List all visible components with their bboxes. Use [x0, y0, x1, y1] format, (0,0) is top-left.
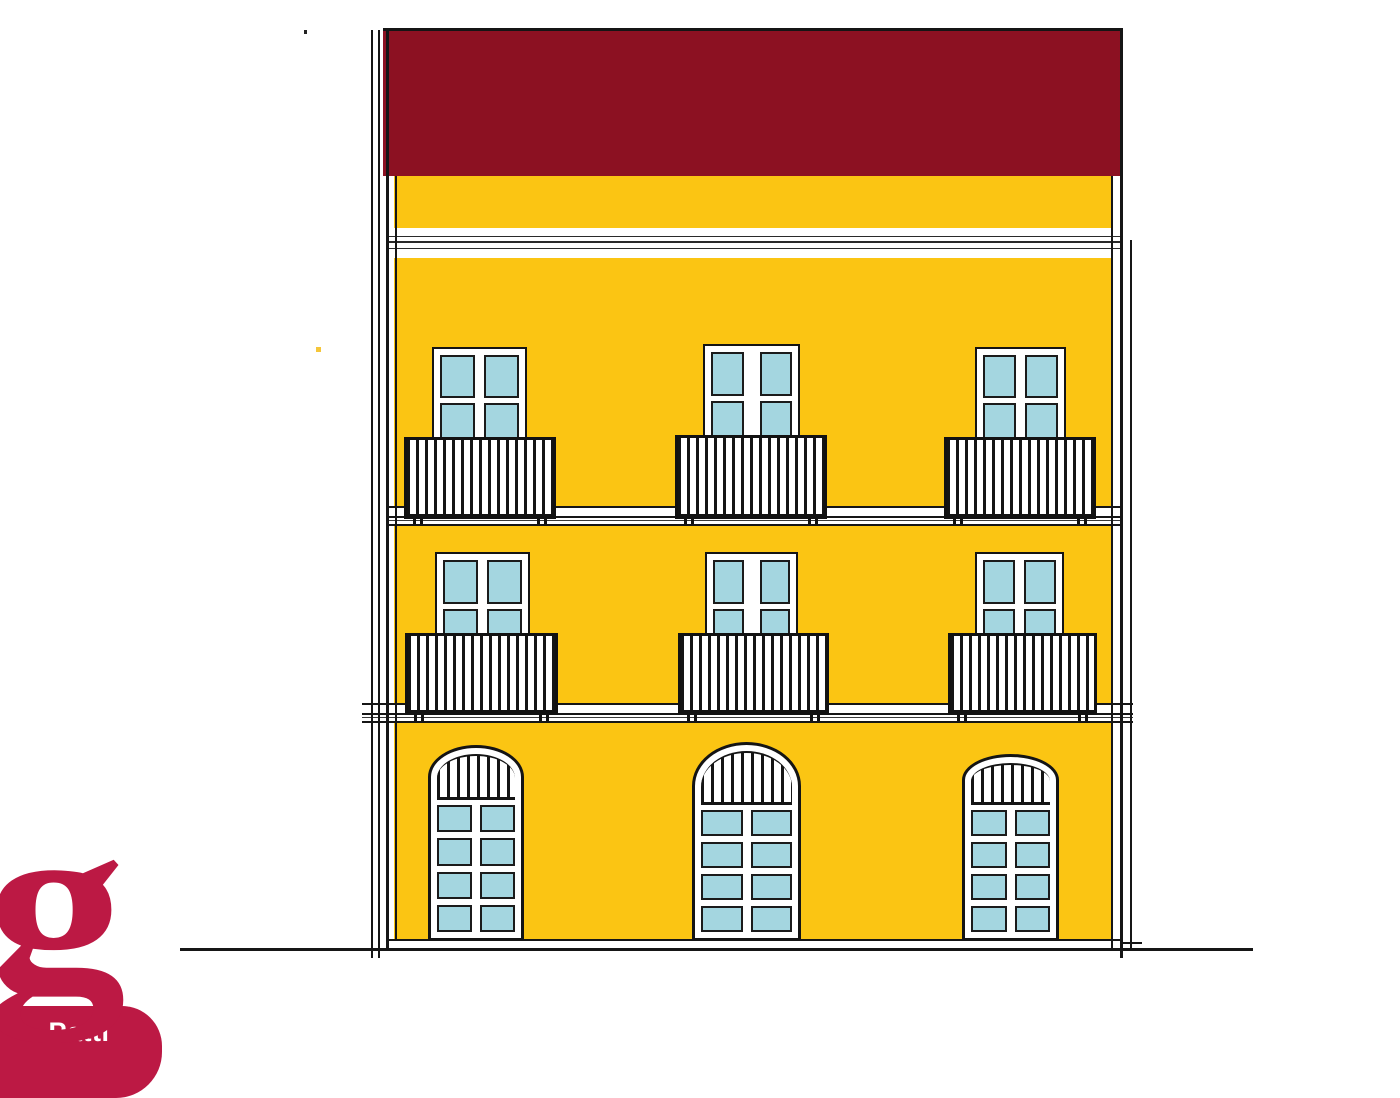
window-pane	[751, 810, 793, 836]
window-pane	[971, 906, 1007, 932]
door-fanlight	[701, 751, 792, 805]
window-pane	[971, 874, 1007, 900]
facade-edge-line	[378, 30, 380, 958]
window-pane	[480, 905, 515, 932]
window-pane	[983, 560, 1015, 604]
window-pane	[440, 355, 475, 398]
balcony-railing	[405, 633, 558, 715]
window-pane	[701, 874, 743, 900]
window-pane	[1025, 355, 1058, 398]
speck	[304, 30, 307, 34]
balcony-railing	[944, 437, 1096, 519]
door-casement	[971, 810, 1007, 932]
door-casement	[701, 810, 743, 932]
window-pane	[1015, 906, 1051, 932]
window-pane	[701, 810, 743, 836]
roof	[383, 28, 1122, 176]
door-fanlight	[971, 763, 1050, 805]
cornice-line	[386, 241, 1122, 243]
window-pane	[443, 560, 478, 604]
ground-line	[180, 948, 1253, 951]
door-glazing	[437, 805, 515, 932]
elevation-drawing	[0, 0, 1400, 1050]
facade-edge-line	[395, 176, 397, 941]
facade-edge-line	[371, 30, 373, 958]
window-pane	[487, 560, 522, 604]
window-pane	[701, 906, 743, 932]
building-base-line	[386, 939, 1122, 941]
cornice-line	[386, 236, 1122, 237]
window-pane	[701, 842, 743, 868]
door-casement	[480, 805, 515, 932]
door-mullion	[1007, 810, 1015, 932]
door-mullion	[743, 810, 751, 932]
cornice-band	[386, 228, 1122, 258]
facade-edge-line	[386, 28, 389, 950]
window-pane	[437, 838, 472, 865]
window-pane	[711, 352, 744, 396]
door-casement	[437, 805, 472, 932]
floor-band-line	[362, 717, 1133, 718]
facade-edge-line	[1111, 176, 1113, 950]
door-mullion	[472, 805, 480, 932]
entrance-door	[428, 745, 524, 941]
window-pane	[971, 810, 1007, 836]
door-fanlight	[437, 754, 515, 800]
window-pane	[751, 906, 793, 932]
window-pane	[437, 872, 472, 899]
window-pane	[1024, 560, 1056, 604]
ground-tick	[1120, 942, 1142, 944]
floor-band-line	[386, 520, 1122, 521]
window-pane	[1015, 810, 1051, 836]
window-pane	[983, 355, 1016, 398]
balcony-railing	[948, 633, 1097, 715]
window-pane	[760, 352, 793, 396]
window-pane	[713, 560, 744, 604]
window-pane	[751, 842, 793, 868]
door-casement	[1015, 810, 1051, 932]
window-pane	[480, 805, 515, 832]
window-pane	[480, 838, 515, 865]
facade-edge-line	[1120, 28, 1123, 958]
entrance-door	[692, 742, 801, 941]
facade-edge-line	[1130, 240, 1132, 950]
window-pane	[484, 355, 519, 398]
window-pane	[751, 874, 793, 900]
balcony-railing	[404, 437, 556, 519]
cornice-line	[386, 248, 1122, 249]
window-pane	[480, 872, 515, 899]
balcony-railing	[678, 633, 829, 715]
door-casement	[751, 810, 793, 932]
window-pane	[437, 905, 472, 932]
door-glazing	[971, 810, 1050, 932]
window-pane	[971, 842, 1007, 868]
entrance-door	[962, 754, 1059, 941]
door-glazing	[701, 810, 792, 932]
speck	[316, 347, 321, 352]
window-pane	[1015, 842, 1051, 868]
window-pane	[437, 805, 472, 832]
balcony-railing	[675, 435, 827, 519]
window-pane	[760, 560, 791, 604]
logo-g-glyph: g	[0, 780, 126, 1030]
window-pane	[1015, 874, 1051, 900]
